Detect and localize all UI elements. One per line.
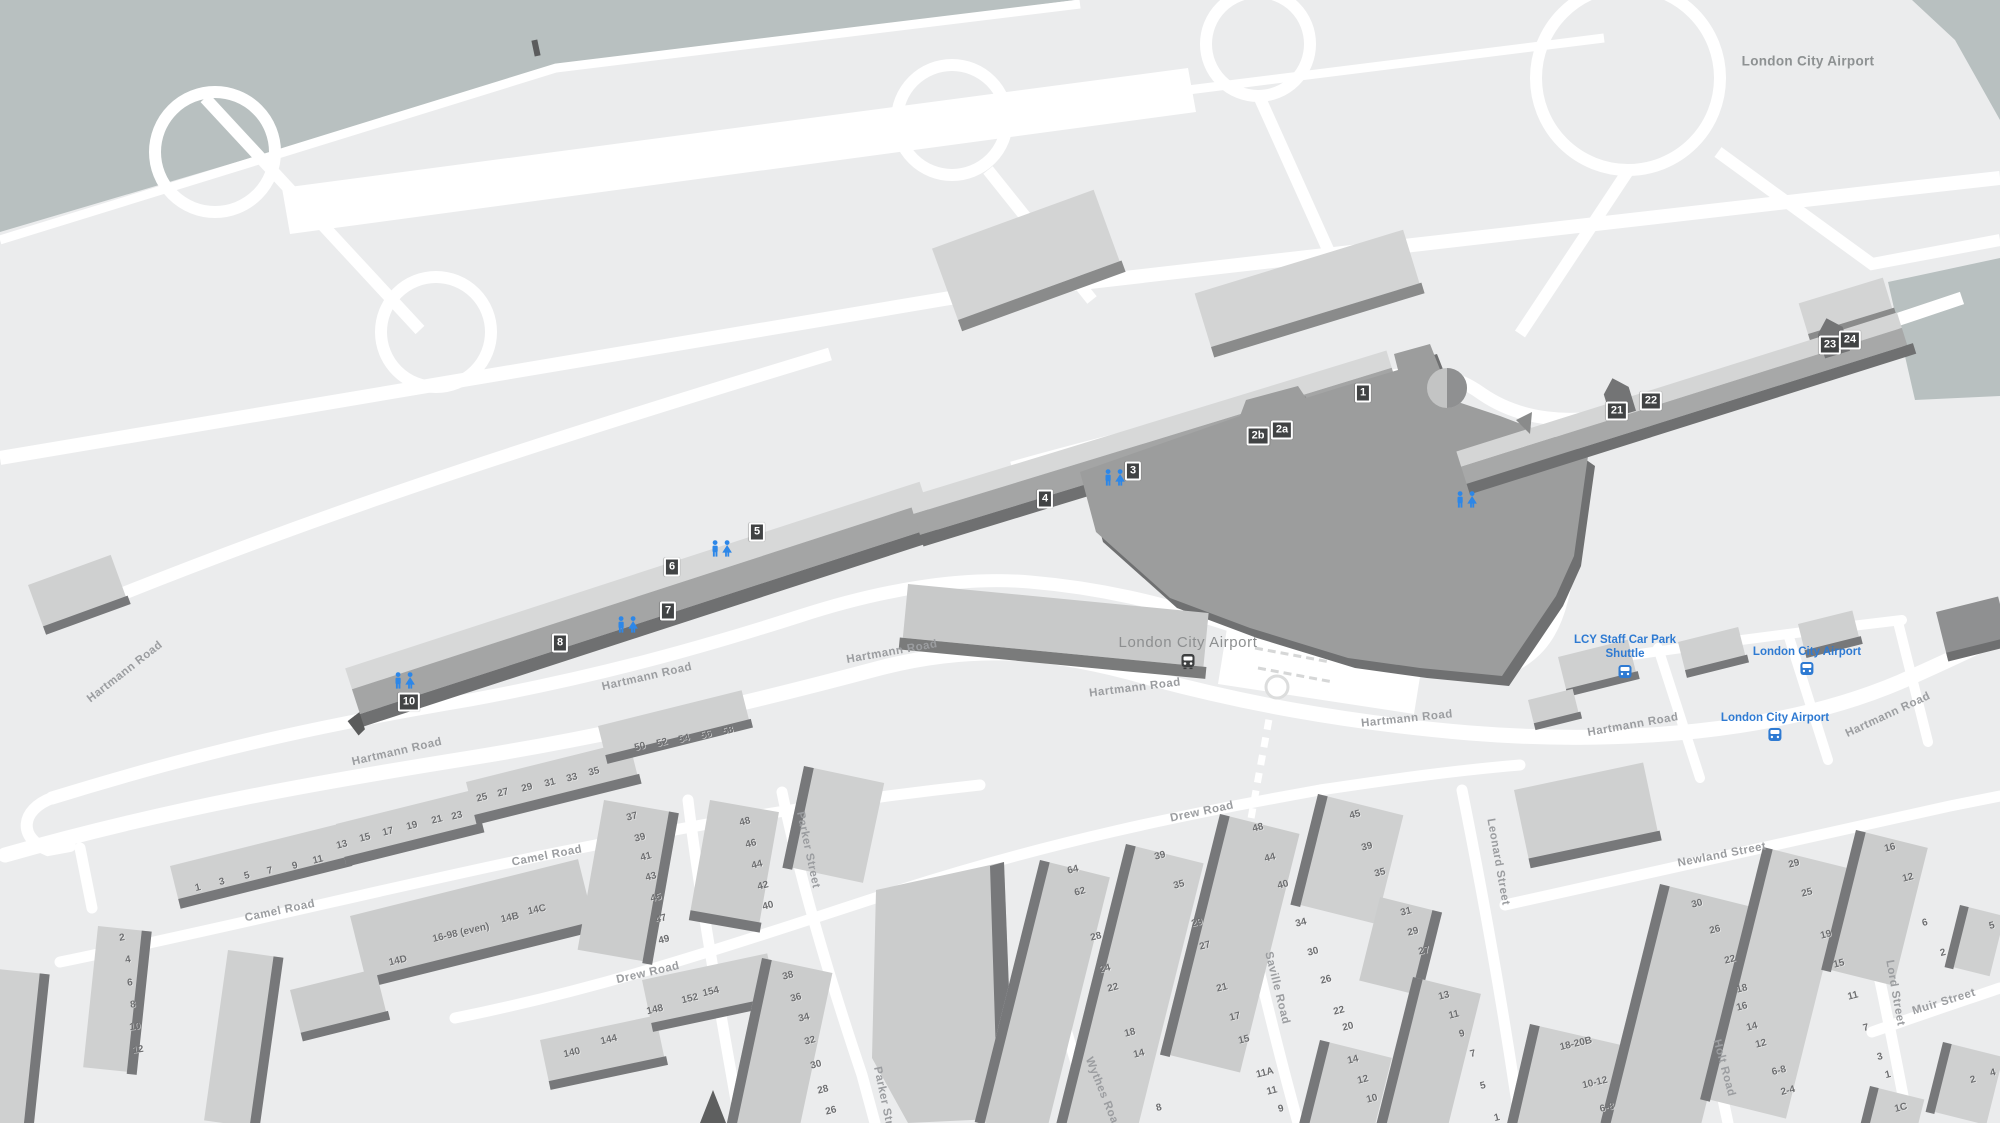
bus-stop-lcy-staff-shuttle[interactable]: LCY Staff Car Park Shuttle: [1566, 633, 1684, 680]
dlr-station[interactable]: London City Airport: [1119, 634, 1258, 670]
station-name: London City Airport: [1119, 634, 1258, 651]
train-icon: [1179, 653, 1196, 670]
bus-stop-name: London City Airport: [1721, 711, 1829, 725]
bus-stop-name: London City Airport: [1753, 645, 1861, 659]
bus-icon: [1767, 727, 1783, 743]
bus-stop-london-city-airport-north[interactable]: London City Airport: [1753, 645, 1861, 677]
airport-map: Hartmann RoadHartmann RoadHartmann RoadH…: [0, 0, 2000, 1123]
bus-icon: [1617, 664, 1633, 680]
map-title: London City Airport: [1742, 54, 1875, 69]
bus-stop-name: LCY Staff Car Park Shuttle: [1566, 633, 1684, 662]
bus-icon: [1799, 661, 1815, 677]
bus-stop-london-city-airport-south[interactable]: London City Airport: [1721, 711, 1829, 743]
